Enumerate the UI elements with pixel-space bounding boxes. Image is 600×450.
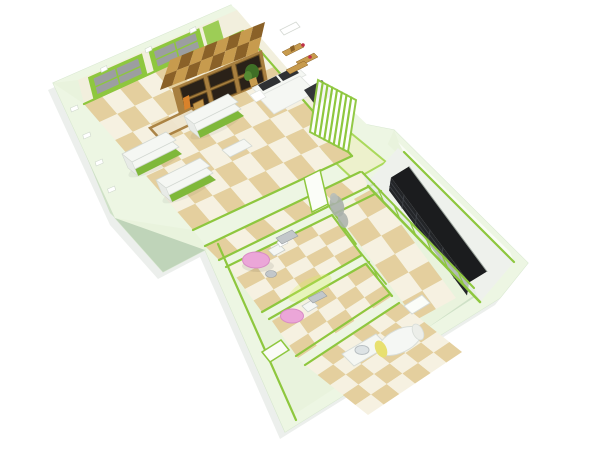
ac-unit [280, 22, 300, 35]
apartment-3d-floorplan [0, 0, 600, 450]
floorplan-render-canvas [0, 0, 600, 450]
